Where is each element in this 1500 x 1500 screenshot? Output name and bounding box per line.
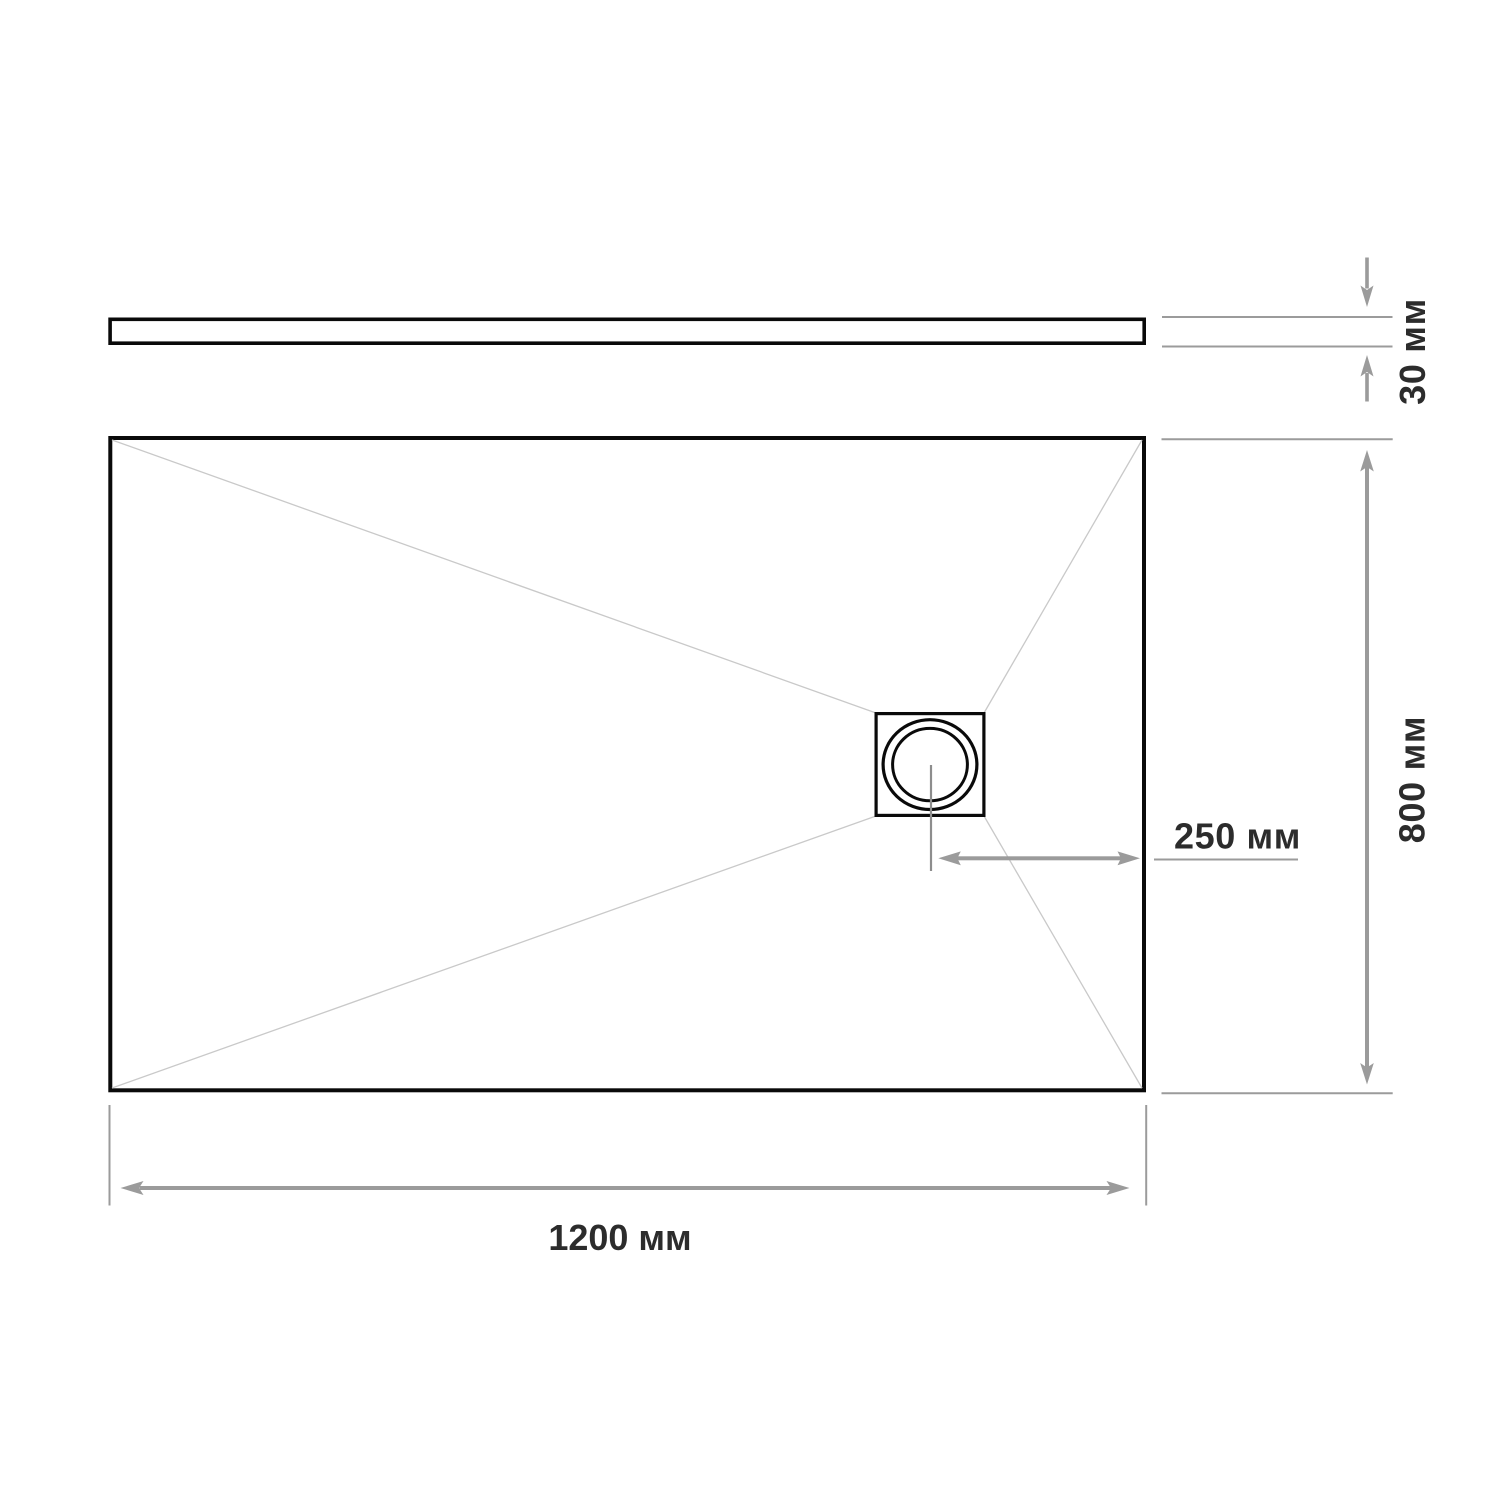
svg-text:1200 мм: 1200 мм [548,1217,691,1258]
svg-text:250 мм: 250 мм [1174,816,1301,857]
svg-text:800 мм: 800 мм [1392,716,1433,844]
svg-text:30 мм: 30 мм [1392,298,1433,405]
